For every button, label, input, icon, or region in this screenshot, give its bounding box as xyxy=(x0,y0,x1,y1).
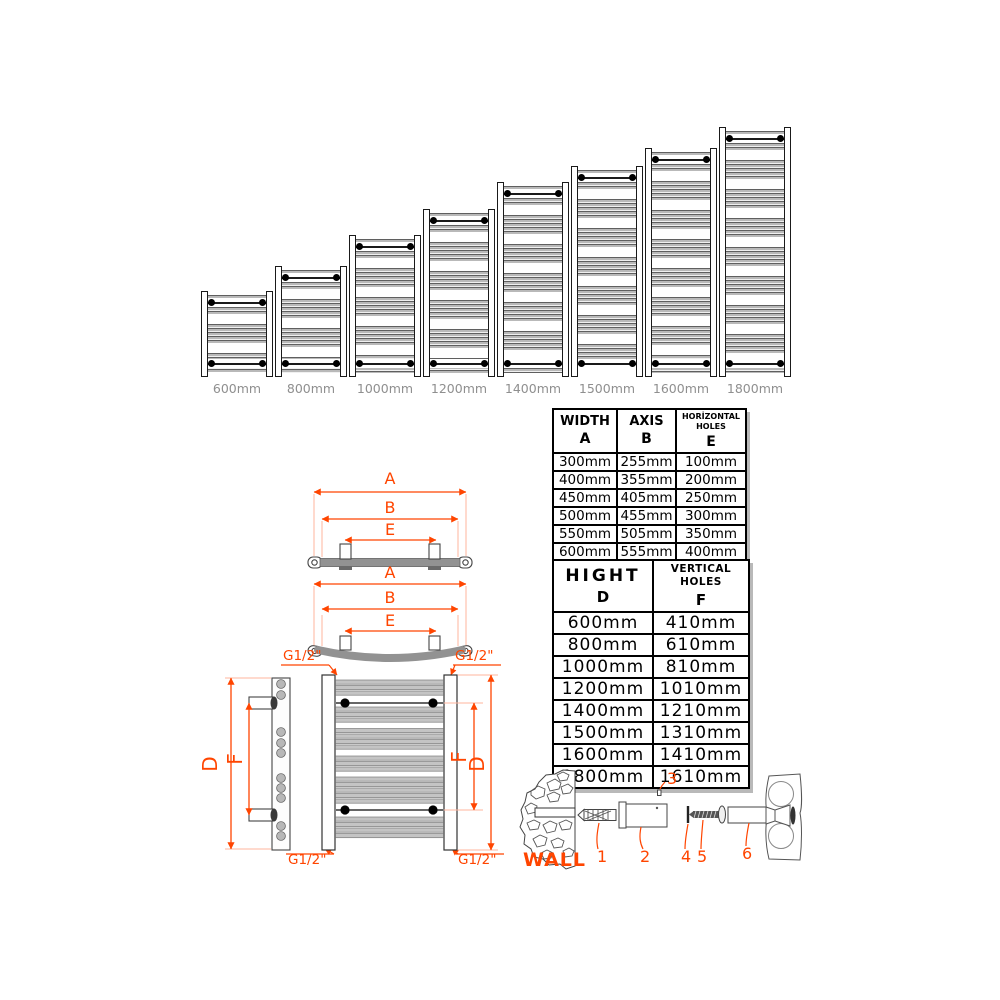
width-spec-table-body: 300mm255mm100mm400mm355mm200mm450mm405mm… xyxy=(553,453,746,561)
thread-size-label: G1/2" xyxy=(283,648,321,664)
wall-label: WALL xyxy=(523,849,586,871)
table-cell: 800mm xyxy=(553,634,653,656)
radiator-size-label: 1000mm xyxy=(357,381,413,396)
radiator-graphic xyxy=(349,235,421,377)
part-number-6: 6 xyxy=(742,844,752,863)
table-cell: 1500mm xyxy=(553,722,653,744)
part-number-4: 4 xyxy=(681,847,691,866)
wall-mounting-diagram: WALL xyxy=(513,763,805,875)
table-cell: 1200mm xyxy=(553,678,653,700)
table-cell: 450mm xyxy=(553,489,617,507)
part-number-2: 2 xyxy=(640,847,650,866)
radiator-rail-right xyxy=(784,127,791,377)
radiator-rail-left xyxy=(497,182,504,377)
radiator-item: 1500mm xyxy=(571,166,643,396)
dim-axis-b-label: B xyxy=(385,588,396,607)
table-cell: 410mm xyxy=(653,612,749,634)
radiator-rail-left xyxy=(719,127,726,377)
radiator-item: 1200mm xyxy=(423,209,495,396)
table-cell: 550mm xyxy=(553,525,617,543)
height-table-header-1: VERTICAL HOLESF xyxy=(653,560,749,612)
radiator-rail-right xyxy=(266,291,273,377)
radiator-bars xyxy=(429,213,489,373)
bracket-sleeve-part xyxy=(619,802,667,828)
dim-height-d-label: D xyxy=(198,756,222,771)
table-cell: 610mm xyxy=(653,634,749,656)
table-cell: 350mm xyxy=(676,525,746,543)
radiator-rail-left xyxy=(645,148,652,377)
mounting-dots-bottom xyxy=(350,359,420,368)
radiator-size-label: 1400mm xyxy=(505,381,561,396)
table-cell: 255mm xyxy=(617,453,676,471)
table-cell: 300mm xyxy=(553,453,617,471)
radiator-rail-section xyxy=(766,774,802,860)
radiator-bars xyxy=(355,239,415,373)
table-row: 600mm410mm xyxy=(553,612,749,634)
mounting-dots-top xyxy=(720,134,790,143)
grub-screw-part xyxy=(658,790,662,796)
mounting-dots-bottom xyxy=(720,359,790,368)
table-cell: 500mm xyxy=(553,507,617,525)
front-view-diagram: G1/2" G1/2" G1/2" G1/2" xyxy=(205,638,510,870)
table-cell: 600mm xyxy=(553,612,653,634)
radiator-rail-left xyxy=(571,166,578,377)
part-number-3: 3 xyxy=(667,769,677,788)
mounting-dots-top xyxy=(424,216,494,225)
radiator-size-label: 1200mm xyxy=(431,381,487,396)
radiator-rail-left xyxy=(201,291,208,377)
mounting-dots-top xyxy=(572,173,642,182)
dim-height-d-label: D xyxy=(465,756,489,771)
dim-width-a-label: A xyxy=(385,469,396,488)
table-cell: 505mm xyxy=(617,525,676,543)
radiator-item: 1400mm xyxy=(497,182,569,396)
height-spec-table-head: HIGHTDVERTICAL HOLESF xyxy=(553,560,749,612)
radiator-bars xyxy=(577,170,637,373)
part-number-5: 5 xyxy=(697,847,707,866)
height-table-header-0: HIGHTD xyxy=(553,560,653,612)
side-view-diagram xyxy=(249,678,290,850)
table-cell: 1010mm xyxy=(653,678,749,700)
size-table-header-2: HORİZONTAL HOLESE xyxy=(676,409,746,453)
radiator-graphic xyxy=(497,182,569,377)
dim-width-a-label: A xyxy=(385,563,396,582)
radiator-size-row: 600mm800mm1000mm1200mm1400mm1500mm1600mm… xyxy=(201,127,791,396)
mounting-dots-top xyxy=(646,155,716,164)
mounting-dots-top xyxy=(350,242,420,251)
radiator-rail-left xyxy=(349,235,356,377)
radiator-size-label: 600mm xyxy=(213,381,261,396)
radiator-item: 800mm xyxy=(275,266,347,396)
table-cell: 810mm xyxy=(653,656,749,678)
radiator-bars xyxy=(651,152,711,373)
radiator-size-label: 1800mm xyxy=(727,381,783,396)
table-cell: 405mm xyxy=(617,489,676,507)
table-row: 400mm355mm200mm xyxy=(553,471,746,489)
radiator-rail-left xyxy=(423,209,430,377)
radiator-item: 1800mm xyxy=(719,127,791,396)
table-cell: 1210mm xyxy=(653,700,749,722)
radiator-rail-right xyxy=(414,235,421,377)
table-cell: 1310mm xyxy=(653,722,749,744)
mounting-dots-top xyxy=(202,298,272,307)
radiator-bars xyxy=(281,270,341,373)
table-row: 550mm505mm350mm xyxy=(553,525,746,543)
dim-holes-e-label: E xyxy=(385,520,395,539)
radiator-size-label: 1600mm xyxy=(653,381,709,396)
mounting-dots-bottom xyxy=(276,359,346,368)
wall-section: WALL xyxy=(520,770,586,871)
radiator-rail-right xyxy=(636,166,643,377)
height-spec-table: HIGHTDVERTICAL HOLESF 600mm410mm800mm610… xyxy=(552,559,750,789)
table-row: 1500mm1310mm xyxy=(553,722,749,744)
table-cell: 400mm xyxy=(553,471,617,489)
radiator-rail-right xyxy=(340,266,347,377)
mounting-dots-bottom xyxy=(498,359,568,368)
table-row: 800mm610mm xyxy=(553,634,749,656)
table-cell: 1000mm xyxy=(553,656,653,678)
thread-size-label: G1/2" xyxy=(455,648,493,664)
mounting-dots-top xyxy=(498,189,568,198)
radiator-item: 1600mm xyxy=(645,148,717,396)
radiator-size-label: 1500mm xyxy=(579,381,635,396)
radiator-graphic xyxy=(645,148,717,377)
mounting-dots-bottom xyxy=(646,359,716,368)
height-spec-table-body: 600mm410mm800mm610mm1000mm810mm1200mm101… xyxy=(553,612,749,788)
radiator-item: 600mm xyxy=(201,291,273,396)
radiator-graphic xyxy=(571,166,643,377)
table-cell: 250mm xyxy=(676,489,746,507)
table-cell: 455mm xyxy=(617,507,676,525)
front-view-ladder xyxy=(322,675,457,850)
mounting-dots-top xyxy=(276,273,346,282)
towel-radiator-spec-sheet: 600mm800mm1000mm1200mm1400mm1500mm1600mm… xyxy=(0,0,1000,1000)
radiator-bars xyxy=(503,186,563,373)
bracket-arm-part xyxy=(728,807,766,823)
mounting-dots-bottom xyxy=(424,359,494,368)
table-cell: 200mm xyxy=(676,471,746,489)
wall-plug-part xyxy=(578,810,616,821)
radiator-graphic xyxy=(201,291,273,377)
mounting-dots-bottom xyxy=(202,359,272,368)
table-cell: 100mm xyxy=(676,453,746,471)
straight-rail-top-view: A B E xyxy=(308,469,472,570)
table-cell: 1400mm xyxy=(553,700,653,722)
radiator-rail-right xyxy=(562,182,569,377)
table-row: 300mm255mm100mm xyxy=(553,453,746,471)
mounting-dots-bottom xyxy=(572,359,642,368)
table-cell: 355mm xyxy=(617,471,676,489)
table-row: 450mm405mm250mm xyxy=(553,489,746,507)
radiator-rail-right xyxy=(488,209,495,377)
radiator-rail-right xyxy=(710,148,717,377)
table-row: 1400mm1210mm xyxy=(553,700,749,722)
table-cell: 300mm xyxy=(676,507,746,525)
width-spec-table: WIDTHAAXISBHORİZONTAL HOLESE 300mm255mm1… xyxy=(552,408,747,562)
radiator-graphic xyxy=(275,266,347,377)
dim-holes-e-label: E xyxy=(385,611,395,630)
size-table-header-0: WIDTHA xyxy=(553,409,617,453)
radiator-size-label: 800mm xyxy=(287,381,335,396)
table-row: 1200mm1010mm xyxy=(553,678,749,700)
radiator-graphic xyxy=(423,209,495,377)
screw-part xyxy=(689,806,726,823)
radiator-bars xyxy=(725,131,785,373)
radiator-rail-left xyxy=(275,266,282,377)
table-row: 500mm455mm300mm xyxy=(553,507,746,525)
dim-vholes-f-label: F xyxy=(223,753,247,765)
size-table-header-1: AXISB xyxy=(617,409,676,453)
part-number-1: 1 xyxy=(597,847,607,866)
radiator-item: 1000mm xyxy=(349,235,421,396)
dim-axis-b-label: B xyxy=(385,498,396,517)
table-row: 1000mm810mm xyxy=(553,656,749,678)
radiator-graphic xyxy=(719,127,791,377)
width-spec-table-head: WIDTHAAXISBHORİZONTAL HOLESE xyxy=(553,409,746,453)
